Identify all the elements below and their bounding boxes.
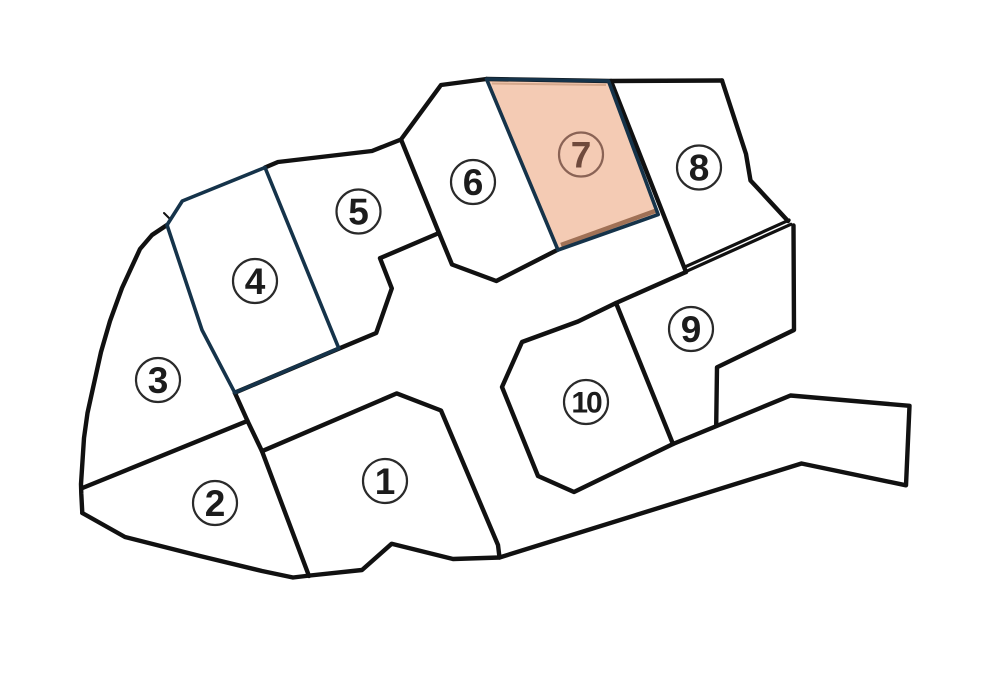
- svg-text:5: 5: [348, 192, 369, 233]
- svg-text:10: 10: [571, 387, 602, 420]
- svg-text:2: 2: [205, 483, 226, 524]
- svg-text:8: 8: [689, 148, 710, 189]
- svg-text:7: 7: [571, 135, 592, 176]
- svg-text:6: 6: [463, 162, 484, 203]
- svg-text:1: 1: [375, 461, 396, 502]
- svg-text:3: 3: [148, 360, 169, 401]
- svg-text:4: 4: [245, 261, 266, 302]
- svg-text:9: 9: [681, 309, 702, 350]
